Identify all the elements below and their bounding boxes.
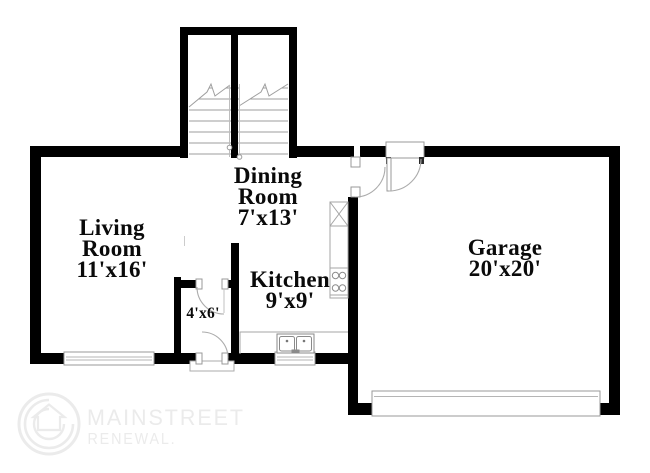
dining-room-label: Dining Room 7'x13' [234,165,302,228]
room-dims: 9'x9' [250,290,330,311]
garage-top-wall-left [360,146,387,157]
room-name-line: Room [76,238,147,259]
staircase-left [189,35,232,157]
stairwell-left-wall [180,27,188,158]
stairwell-middle-wall [231,34,238,158]
window-kitchen [275,352,315,365]
staircase-right [237,35,288,159]
stairwell-top-wall [180,27,297,35]
dining-door [351,157,385,197]
room-dims: 11'x16' [76,259,147,280]
garage-door [372,391,600,416]
dining-top-wall [297,146,354,157]
room-name-line: Dining [234,165,302,186]
kitchen-sink-icon [277,334,314,354]
bottom-wall-1 [30,353,65,364]
room-name-line: Kitchen [250,269,330,290]
entry-door [190,332,234,371]
floorplan-page: MAINSTREET RENEWAL. Living Room 11'x16' … [0,0,650,473]
room-dims: 7'x13' [234,207,302,228]
room-dims: 20'x20' [468,258,543,279]
room-name-line: Living [76,217,147,238]
window-living [64,352,154,365]
living-left-wall [30,146,41,364]
watermark-brand-text: MAINSTREET [87,405,245,430]
closet-top-wall-left [174,280,196,288]
living-top-wall [30,146,188,157]
room-name-line: Garage [468,237,543,258]
closet-left-wall [174,277,181,364]
garage-top-wall-right [423,146,620,157]
room-name-line: Room [234,186,302,207]
watermark-subtitle-text: RENEWAL. [88,431,177,448]
living-room-label: Living Room 11'x16' [76,217,147,280]
closet-label: 4'x6' [186,306,219,321]
kitchen-label: Kitchen 9'x9' [250,269,330,311]
garage-label: Garage 20'x20' [468,237,543,279]
kitchen-garage-wall [348,197,358,412]
garage-right-wall [609,146,620,415]
watermark-logo [19,394,79,454]
kitchen-dining-divider-wall [231,243,239,364]
garage-entry-door [386,142,424,191]
room-dims: 4'x6' [186,306,219,321]
stairwell-right-wall [289,27,297,158]
